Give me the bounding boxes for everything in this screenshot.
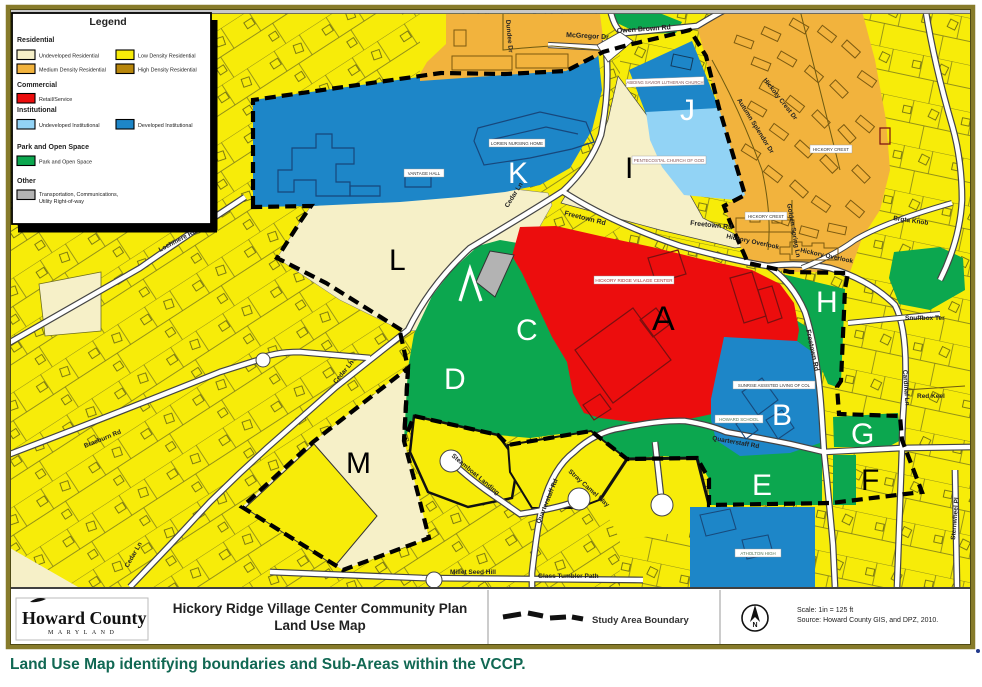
svg-text:Undeveloped Residential: Undeveloped Residential xyxy=(39,54,99,60)
svg-text:Hickory Ridge Village Center C: Hickory Ridge Village Center Community P… xyxy=(173,601,468,616)
svg-text:MARYLAND: MARYLAND xyxy=(48,630,118,636)
svg-text:A: A xyxy=(652,300,675,338)
svg-text:ATHOLTON HIGH: ATHOLTON HIGH xyxy=(740,551,775,556)
svg-text:Land Use Map identifying bound: Land Use Map identifying boundaries and … xyxy=(10,656,526,673)
svg-text:Red Keel: Red Keel xyxy=(917,393,945,400)
svg-text:Snuffbox Ter: Snuffbox Ter xyxy=(905,315,945,322)
svg-text:H: H xyxy=(816,286,838,319)
svg-text:Land Use Map: Land Use Map xyxy=(274,618,366,633)
svg-text:Retail/Service: Retail/Service xyxy=(39,97,72,103)
svg-text:Developed Institutional: Developed Institutional xyxy=(138,123,193,129)
svg-text:M: M xyxy=(346,447,371,480)
svg-text:Undeveloped Institutional: Undeveloped Institutional xyxy=(39,123,100,129)
svg-text:High Density Residential: High Density Residential xyxy=(138,68,197,74)
svg-text:Study Area Boundary: Study Area Boundary xyxy=(592,615,689,626)
svg-text:ABIDING SAVIOR LUTHERAN CHURCH: ABIDING SAVIOR LUTHERAN CHURCH xyxy=(627,80,704,85)
svg-text:Howard County: Howard County xyxy=(22,608,147,628)
svg-text:Other: Other xyxy=(17,178,36,185)
svg-text:HICKORY CREST: HICKORY CREST xyxy=(748,214,784,219)
svg-text:Scale: 1in = 125 ft: Scale: 1in = 125 ft xyxy=(797,607,853,614)
svg-text:Utility Right-of-way: Utility Right-of-way xyxy=(39,199,84,205)
svg-text:Park and Open Space: Park and Open Space xyxy=(39,160,92,166)
svg-text:LORIEN NURSING HOME: LORIEN NURSING HOME xyxy=(491,141,543,146)
svg-text:B: B xyxy=(772,399,792,432)
svg-text:Commercial: Commercial xyxy=(17,82,57,89)
svg-text:PENTECOSTAL CHURCH OF GOD: PENTECOSTAL CHURCH OF GOD xyxy=(634,158,705,163)
svg-text:HICKORY RIDGE VILLAGE CENTER: HICKORY RIDGE VILLAGE CENTER xyxy=(595,278,673,283)
svg-text:Glass Tumbler Path: Glass Tumbler Path xyxy=(538,573,599,580)
svg-text:Medium Density Residential: Medium Density Residential xyxy=(39,68,106,74)
svg-text:I: I xyxy=(625,152,633,185)
svg-text:L: L xyxy=(389,244,406,277)
svg-text:J: J xyxy=(680,94,695,127)
svg-text:Source: Howard County GIS, an: Source: Howard County GIS, and DPZ, 2010… xyxy=(797,617,938,624)
svg-text:C: C xyxy=(516,314,538,347)
svg-text:HOWARD SCHOOL: HOWARD SCHOOL xyxy=(719,417,759,422)
svg-text:Transportation, Communications: Transportation, Communications, xyxy=(39,192,119,198)
svg-text:G: G xyxy=(851,418,874,451)
svg-text:K: K xyxy=(508,157,528,190)
svg-text:Millet Seed Hill: Millet Seed Hill xyxy=(450,569,496,576)
svg-text:Park and Open Space: Park and Open Space xyxy=(17,144,89,151)
svg-text:D: D xyxy=(444,363,466,396)
svg-text:E: E xyxy=(752,469,772,502)
svg-text:Residential: Residential xyxy=(17,37,54,44)
svg-text:HICKORY CREST: HICKORY CREST xyxy=(813,147,849,152)
svg-text:F: F xyxy=(861,464,879,497)
svg-text:VANTAGE HALL: VANTAGE HALL xyxy=(408,171,441,176)
svg-text:Institutional: Institutional xyxy=(17,107,57,114)
svg-text:N: N xyxy=(752,622,757,629)
svg-text:Low Density Residential: Low Density Residential xyxy=(138,54,196,60)
svg-text:Legend: Legend xyxy=(89,16,126,28)
svg-text:SUNRISE ASSISTED LIVING OF COL: SUNRISE ASSISTED LIVING OF COL xyxy=(738,383,811,388)
